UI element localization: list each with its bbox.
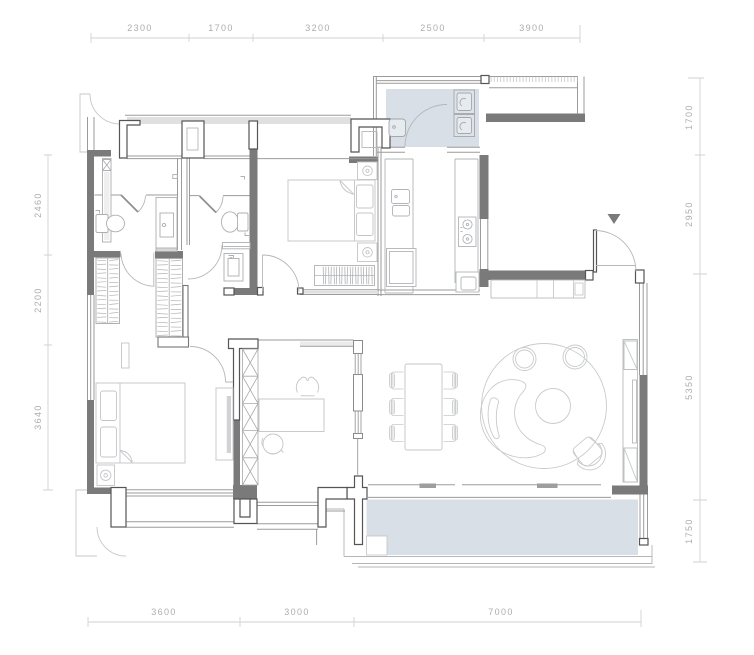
svg-text:3640: 3640 xyxy=(33,404,43,430)
svg-text:2460: 2460 xyxy=(33,192,43,218)
svg-text:3000: 3000 xyxy=(284,607,310,617)
svg-text:2300: 2300 xyxy=(127,23,153,33)
svg-text:2950: 2950 xyxy=(684,201,694,227)
svg-text:2200: 2200 xyxy=(33,287,43,313)
svg-text:3600: 3600 xyxy=(151,607,177,617)
svg-text:2500: 2500 xyxy=(420,23,446,33)
svg-text:1700: 1700 xyxy=(684,104,694,130)
svg-text:7000: 7000 xyxy=(488,607,514,617)
svg-text:3900: 3900 xyxy=(519,23,545,33)
svg-text:1750: 1750 xyxy=(684,518,694,544)
svg-text:3200: 3200 xyxy=(305,23,331,33)
svg-text:1700: 1700 xyxy=(208,23,234,33)
svg-text:5350: 5350 xyxy=(684,374,694,400)
